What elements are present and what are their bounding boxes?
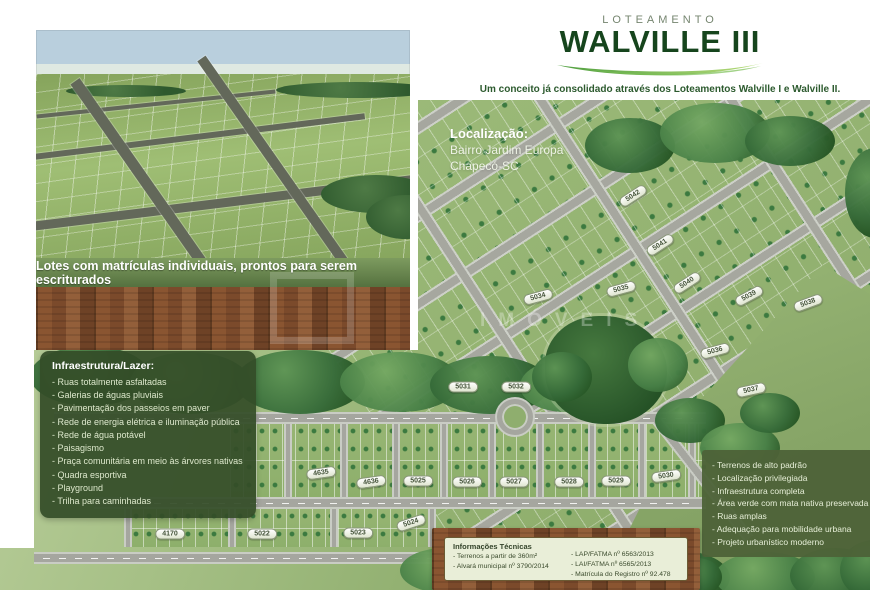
feature-item: - Ruas amplas <box>712 510 870 523</box>
technical-heading: Informações Técnicas <box>453 542 561 551</box>
feature-item: - Projeto urbanístico moderno <box>712 536 870 549</box>
infrastructure-item: - Trilha para caminhadas <box>52 495 244 508</box>
feature-item: - Terrenos de alto padrão <box>712 459 870 472</box>
watermark-text: IMÓVEIS <box>480 310 650 332</box>
lot-number-badge: 5025 <box>403 476 433 487</box>
technical-item: - Matrícula do Registro nº 92.478 <box>571 570 679 580</box>
aerial-render-image <box>36 30 410 258</box>
tree-cluster <box>628 338 688 392</box>
watermark-logo <box>270 272 354 344</box>
lot-number-badge: 5028 <box>554 477 584 488</box>
infrastructure-item: - Ruas totalmente asfaltadas <box>52 376 244 389</box>
tree-cluster <box>532 352 592 402</box>
features-panel: - Terrenos de alto padrão - Localização … <box>702 450 870 557</box>
location-line: Chapecó-SC <box>450 159 563 175</box>
technical-item: - Terrenos a partir de 360m² <box>453 552 561 562</box>
infrastructure-panel: Infraestrutura/Lazer: - Ruas totalmente … <box>40 351 256 518</box>
feature-item: - Localização privilegiada <box>712 472 870 485</box>
tree-cluster <box>740 393 800 433</box>
road <box>440 424 448 497</box>
lot-number-badge: 5023 <box>343 528 373 539</box>
location-line: Bairro Jardim Europa <box>450 143 563 159</box>
technical-item: - LAP/FATMA nº 6563/2013 <box>571 550 679 560</box>
logo-swoosh <box>555 60 765 80</box>
road <box>488 424 496 497</box>
road <box>330 509 338 547</box>
logo-title: WALVILLE III <box>520 26 800 59</box>
infrastructure-heading: Infraestrutura/Lazer: <box>52 360 244 372</box>
infrastructure-item: - Rede de energia elétrica e iluminação … <box>52 416 244 429</box>
logo: LOTEAMENTO WALVILLE III <box>520 14 800 80</box>
infrastructure-item: - Rede de água potável <box>52 429 244 442</box>
lot-number-badge: 5029 <box>601 476 631 487</box>
lot-number-badge: 5026 <box>452 477 482 488</box>
infrastructure-item: - Quadra esportiva <box>52 469 244 482</box>
road <box>536 424 544 497</box>
technical-item: - LAI/FATMA nº 6565/2013 <box>571 560 679 570</box>
road <box>340 424 348 497</box>
lot-number-badge: 4170 <box>155 529 185 540</box>
lot-number-badge: 5032 <box>501 382 531 393</box>
logo-tagline: Um conceito já consolidado através dos L… <box>470 84 850 95</box>
roundabout <box>497 399 533 435</box>
feature-item: - Área verde com mata nativa preservada <box>712 497 870 510</box>
technical-info-box: Informações Técnicas - Terrenos a partir… <box>444 537 688 581</box>
lot-number-badge: 5031 <box>448 382 478 393</box>
poster: Lotes com matrículas individuais, pronto… <box>0 0 870 590</box>
road <box>392 424 400 497</box>
road <box>638 424 646 497</box>
location-block: Localização: Bairro Jardim Europa Chapec… <box>450 126 563 174</box>
infrastructure-item: - Pavimentação dos passeios em paver <box>52 402 244 415</box>
infrastructure-item: - Praça comunitária em meio às árvores n… <box>52 455 244 468</box>
infrastructure-item: - Galerias de águas pluviais <box>52 389 244 402</box>
infrastructure-item: - Playground <box>52 482 244 495</box>
lot-number-badge: 5022 <box>247 529 277 540</box>
lot-number-badge: 5027 <box>499 477 529 488</box>
feature-item: - Infraestrutura completa <box>712 485 870 498</box>
infrastructure-item: - Paisagismo <box>52 442 244 455</box>
road <box>284 424 292 497</box>
technical-item: - Alvará municipal nº 3790/2014 <box>453 562 561 572</box>
location-heading: Localização: <box>450 126 563 141</box>
tree-cluster <box>745 116 835 166</box>
road <box>588 424 596 497</box>
feature-item: - Adequação para mobilidade urbana <box>712 523 870 536</box>
